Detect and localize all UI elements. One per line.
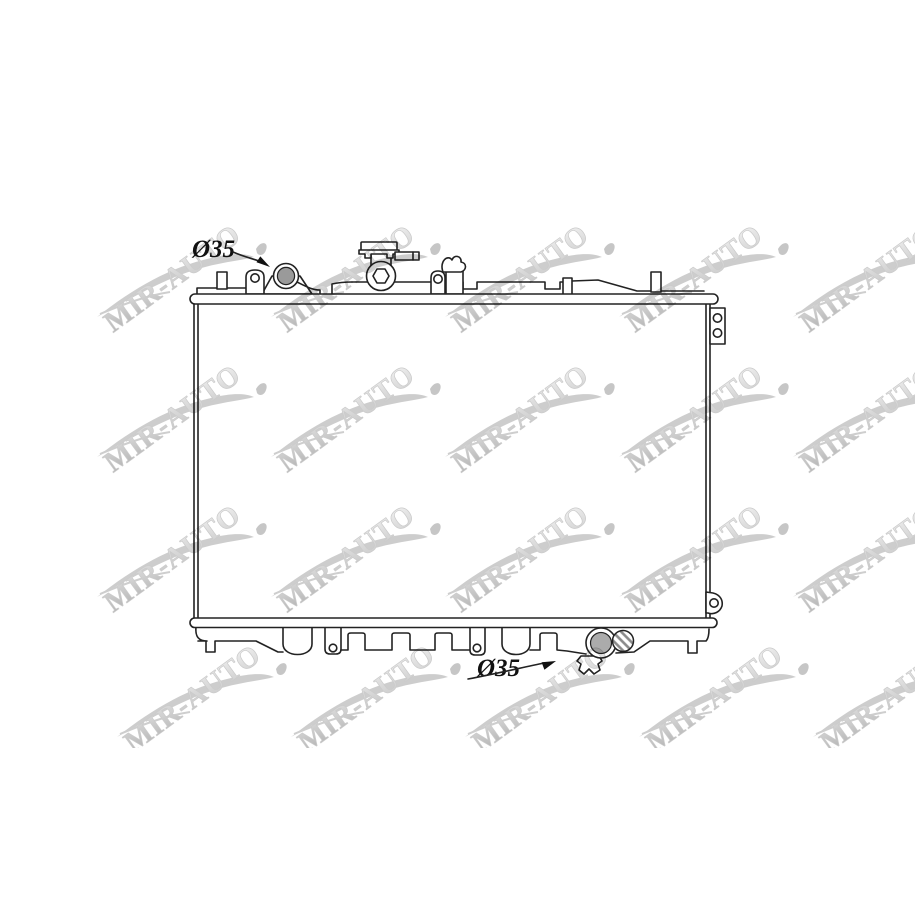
watermark: MIR-AUTO [271, 358, 441, 478]
bracket-hole [710, 599, 718, 607]
watermark-text: MIR-AUTO [446, 498, 595, 618]
watermark: MIR-AUTO [813, 638, 915, 758]
drain-plug [613, 631, 634, 652]
watermark-text: MIR-AUTO [292, 638, 441, 758]
bottom-header-plate [190, 618, 717, 628]
top-tab-middle [563, 278, 572, 295]
watermark: MIR-AUTO [97, 358, 267, 478]
bracket-hole [329, 644, 337, 652]
watermark-text: MIR-AUTO [98, 498, 247, 618]
inlet-diameter-label: Ø35 [191, 236, 235, 263]
watermark-text: MIR-AUTO [640, 638, 789, 758]
bracket-hole [713, 329, 721, 337]
bottom-bump-right [502, 624, 530, 655]
watermark-text: MIR-AUTO [794, 498, 915, 618]
watermark: MIR-AUTO [619, 498, 789, 618]
watermark: MIR-AUTO [97, 498, 267, 618]
watermark: MIR-AUTO [619, 218, 789, 338]
radiator-product-image: MIR-AUTO MIR-AUTO MIR-AUTO MIR-AUTO MIR-… [0, 0, 915, 915]
bracket-hole [434, 275, 442, 283]
watermark-text: MIR-AUTO [620, 358, 769, 478]
top-bracket-middle [431, 256, 466, 294]
watermark-text: MIR-AUTO [446, 358, 595, 478]
inlet-pipe-opening [277, 267, 294, 284]
watermark: MIR-AUTO [445, 358, 615, 478]
watermark-text: MIR-AUTO [272, 358, 421, 478]
watermark: MIR-AUTO [117, 638, 287, 758]
side-bracket-upper [710, 308, 725, 344]
watermark: MIR-AUTO [445, 218, 615, 338]
watermark: MIR-AUTO [793, 218, 915, 338]
watermark: MIR-AUTO [97, 218, 267, 338]
watermark-text: MIR-AUTO [620, 498, 769, 618]
watermark: MIR-AUTO [793, 498, 915, 618]
outlet-diameter-label: Ø35 [476, 655, 520, 682]
watermark: MIR-AUTO [639, 638, 809, 758]
watermark-text: MIR-AUTO [620, 218, 769, 338]
watermark-text: MIR-AUTO [272, 498, 421, 618]
watermark-text: MIR-AUTO [118, 638, 267, 758]
top-tank [197, 242, 704, 295]
watermark: MIR-AUTO [271, 498, 441, 618]
watermark: MIR-AUTO [619, 358, 789, 478]
bracket-hole [251, 274, 259, 282]
bracket-hole [473, 644, 481, 652]
watermark: MIR-AUTO [291, 638, 461, 758]
radiator-technical-drawing: MIR-AUTO MIR-AUTO MIR-AUTO MIR-AUTO MIR-… [0, 0, 915, 915]
side-bracket-lower [706, 592, 722, 614]
watermark-text: MIR-AUTO [98, 358, 247, 478]
watermark: MIR-AUTO [793, 358, 915, 478]
clamp-wing [442, 256, 466, 272]
bracket-hole [713, 314, 721, 322]
top-tab-left [217, 272, 227, 289]
bottom-bump-left [283, 624, 312, 655]
watermark-text: MIR-AUTO [794, 358, 915, 478]
watermark-text: MIR-AUTO [794, 218, 915, 338]
watermark-text: MIR-AUTO [814, 638, 915, 758]
watermark: MIR-AUTO [445, 498, 615, 618]
